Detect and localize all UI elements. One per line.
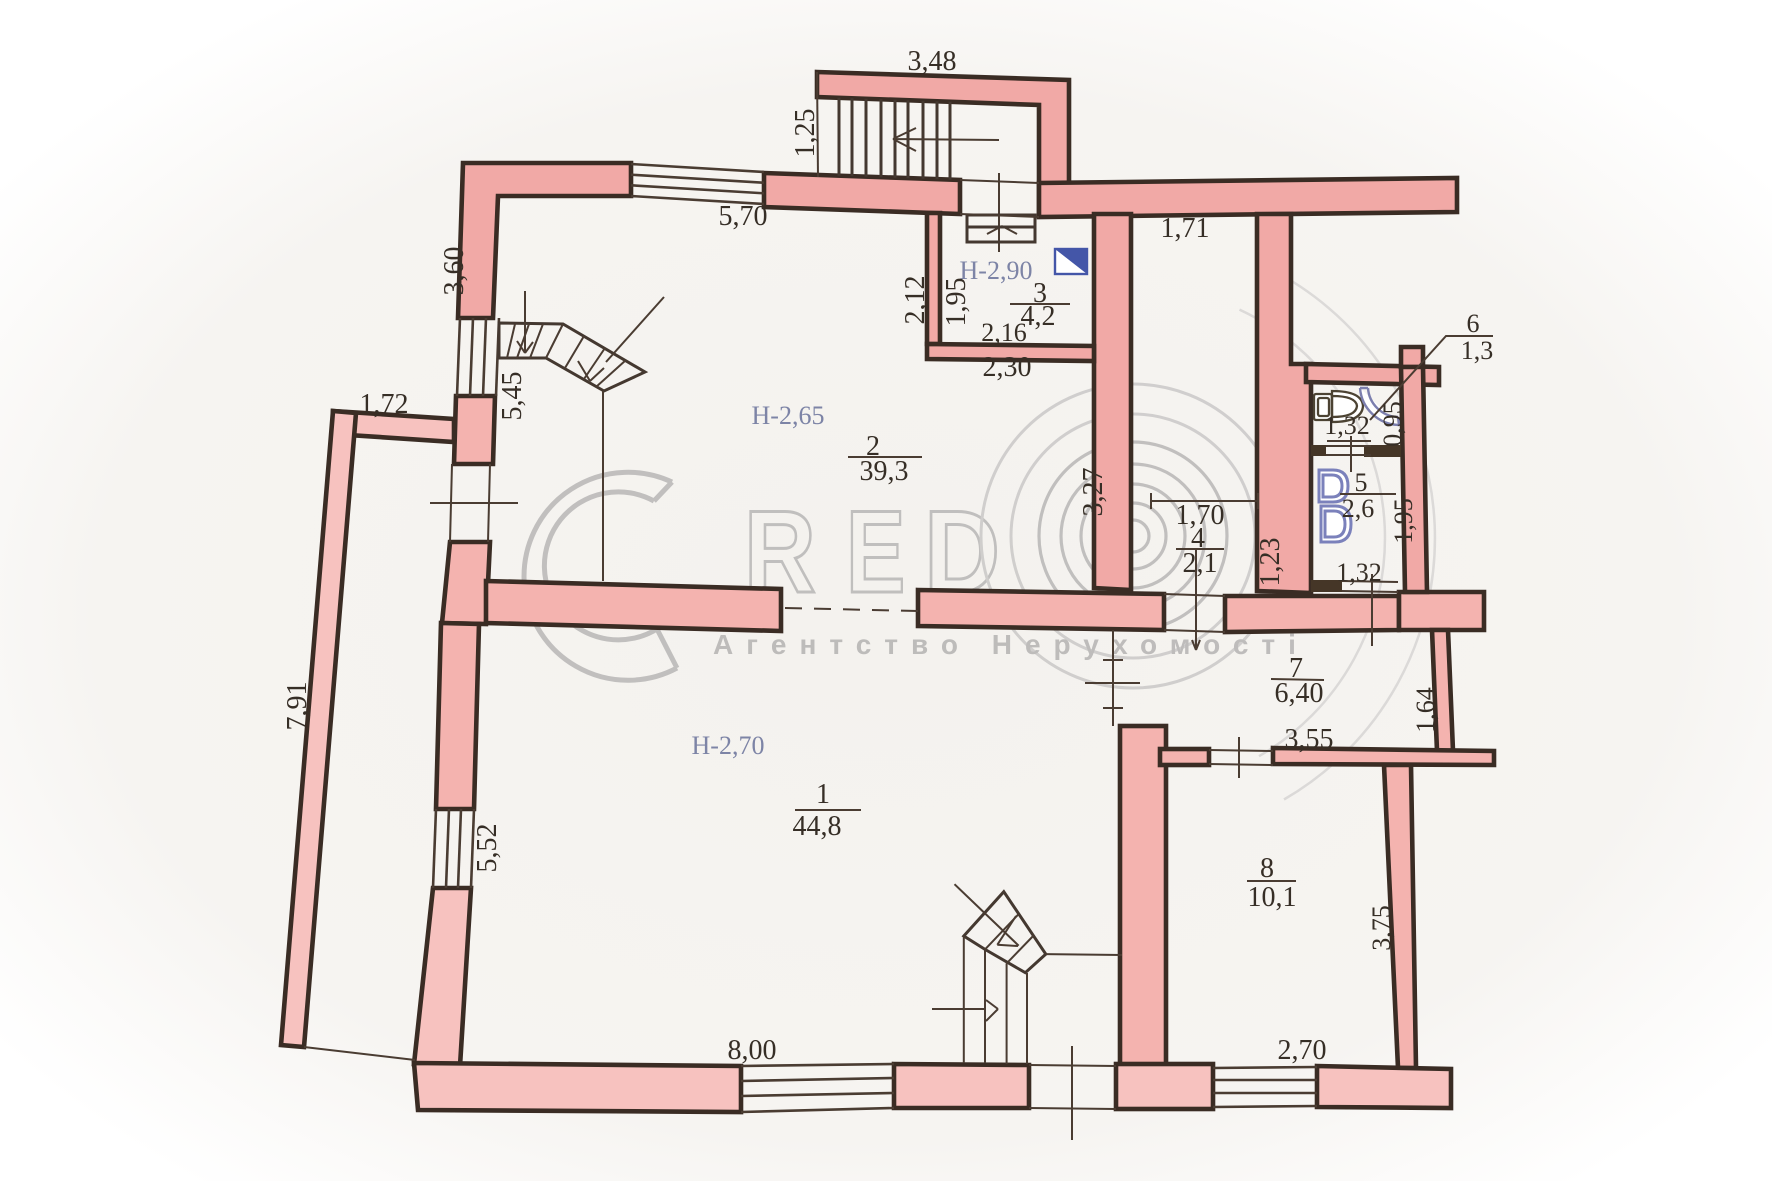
svg-text:1: 1 [816, 779, 830, 810]
svg-text:44,8: 44,8 [793, 811, 842, 842]
svg-text:2,1: 2,1 [1183, 548, 1218, 579]
svg-text:8,00: 8,00 [728, 1035, 777, 1066]
svg-text:1,3: 1,3 [1461, 336, 1494, 365]
svg-text:1,72: 1,72 [360, 389, 409, 420]
svg-text:3,75: 3,75 [1367, 905, 1396, 951]
svg-text:1,32: 1,32 [1324, 411, 1370, 440]
svg-text:8: 8 [1260, 853, 1274, 884]
svg-text:7,91: 7,91 [282, 682, 313, 731]
svg-text:0,95: 0,95 [1378, 401, 1407, 447]
svg-text:3,48: 3,48 [908, 46, 957, 77]
svg-text:3,55: 3,55 [1285, 724, 1334, 755]
svg-text:3,27: 3,27 [1078, 468, 1109, 517]
svg-text:5,70: 5,70 [719, 201, 768, 232]
svg-text:1,71: 1,71 [1161, 213, 1210, 244]
svg-text:1,32: 1,32 [1336, 558, 1382, 587]
svg-text:1,64: 1,64 [1411, 687, 1440, 733]
svg-text:6,40: 6,40 [1275, 678, 1324, 709]
svg-text:E: E [846, 487, 905, 618]
svg-text:2,16: 2,16 [981, 318, 1027, 347]
svg-text:2,6: 2,6 [1342, 494, 1375, 523]
svg-text:Н-2,65: Н-2,65 [752, 401, 825, 430]
svg-text:1,70: 1,70 [1176, 500, 1225, 531]
svg-text:6: 6 [1467, 309, 1480, 338]
svg-text:Агентство Нерухомості: Агентство Нерухомості [713, 629, 1309, 660]
svg-text:1,23: 1,23 [1255, 538, 1286, 587]
svg-text:5,52: 5,52 [472, 824, 503, 873]
svg-text:1,25: 1,25 [790, 109, 821, 158]
svg-text:39,3: 39,3 [860, 456, 909, 487]
svg-text:5: 5 [1355, 468, 1368, 497]
svg-text:2,12: 2,12 [900, 276, 931, 325]
svg-text:1,95: 1,95 [941, 278, 972, 327]
svg-text:2,30: 2,30 [983, 352, 1032, 383]
svg-text:5,45: 5,45 [497, 372, 528, 421]
svg-text:10,1: 10,1 [1248, 882, 1297, 913]
svg-text:2,70: 2,70 [1278, 1035, 1327, 1066]
svg-text:1,95: 1,95 [1389, 498, 1418, 544]
svg-text:3,60: 3,60 [439, 247, 470, 296]
svg-text:Н-2,70: Н-2,70 [692, 731, 765, 760]
